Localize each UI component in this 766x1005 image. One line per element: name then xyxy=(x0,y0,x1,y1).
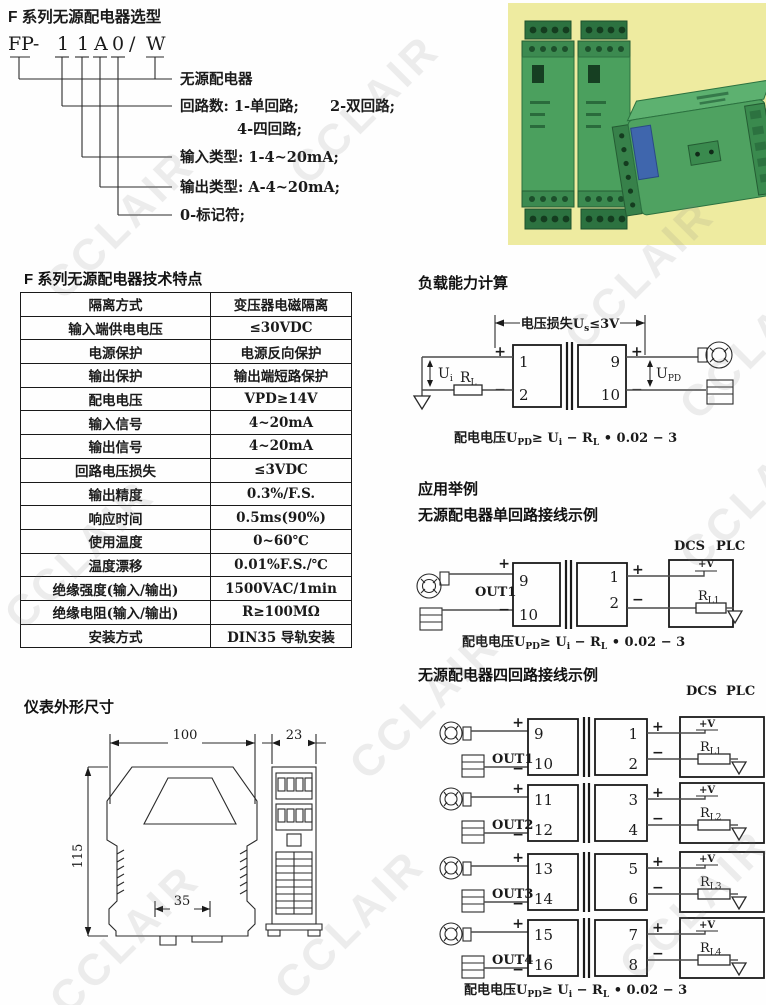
svg-text:14: 14 xyxy=(534,890,553,908)
svg-text:8: 8 xyxy=(628,956,638,974)
label-input-type: 输入类型: 1-4~20mA; xyxy=(180,148,339,166)
svg-text:2: 2 xyxy=(628,755,638,773)
table-row: 温度漂移0.01%F.S./℃ xyxy=(21,553,352,577)
voltage-loss-dim: 电压损失Us≤3V xyxy=(495,315,645,355)
label-passive-distributor: 无源配电器 xyxy=(180,70,253,88)
label-loop-count-2: 2-双回路; xyxy=(330,97,395,115)
table-row: 输入信号4~20mA xyxy=(21,411,352,435)
four-loop-formula: 配电电压UPD≥ Ui − RL • 0.02 − 3 xyxy=(464,982,687,1000)
svg-text:1: 1 xyxy=(57,33,69,55)
ground-symbol xyxy=(732,897,746,909)
svg-text:23: 23 xyxy=(286,728,303,743)
specs-table: 隔离方式变压器电磁隔离 输入端供电电压≤30VDC 电源保护电源反向保护 输出保… xyxy=(20,292,352,648)
input-terminal-box xyxy=(577,563,627,626)
application-title: 应用举例 xyxy=(418,478,478,499)
minus-sign: − xyxy=(632,592,644,608)
dimension-drawing: 100 23 115 xyxy=(10,716,395,1004)
load-calc-diagram: 电压损失Us≤3V 1 2 9 10 + − + − Ui RL UPD xyxy=(402,292,766,454)
out1-label: OUT1 xyxy=(475,585,516,600)
front-view xyxy=(266,767,322,936)
plc-label: PLC xyxy=(726,684,755,699)
terminal-2: 2 xyxy=(609,594,619,612)
isolation-barrier xyxy=(566,560,571,629)
plus-sign: + xyxy=(512,715,524,731)
minus-sign: − xyxy=(512,896,524,912)
plus-sign: + xyxy=(498,556,510,572)
svg-text:FP-: FP- xyxy=(8,33,39,55)
svg-text:4: 4 xyxy=(628,821,638,839)
plus-sign: + xyxy=(512,850,524,866)
svg-text:电压损失Us≤3V: 电压损失Us≤3V xyxy=(521,316,620,334)
plus-v-label: +V xyxy=(699,854,715,865)
minus-sign: − xyxy=(512,962,524,978)
selection-labels: 无源配电器 回路数: 1-单回路; 2-双回路; 4-四回路; 输入类型: 1-… xyxy=(180,70,395,224)
svg-text:0: 0 xyxy=(112,33,124,55)
table-row: 电源保护电源反向保护 xyxy=(21,340,352,364)
label-output-type: 输出类型: A-4~20mA; xyxy=(180,178,340,196)
svg-text:3: 3 xyxy=(628,791,638,809)
loop-row-4: OUT4 + − 15 16 7 8 + − +V RL4 xyxy=(440,916,764,978)
table-row: 安装方式DIN35 导轨安装 xyxy=(21,624,352,648)
svg-text:10: 10 xyxy=(534,755,553,773)
svg-text:W: W xyxy=(146,33,166,55)
isolation-barrier xyxy=(567,342,572,410)
table-row: 配电电压VPD≥14V xyxy=(21,387,352,411)
table-row: 输出信号4~20mA xyxy=(21,435,352,459)
plus-v-label: +V xyxy=(699,719,715,730)
dimensions-title: 仪表外形尺寸 xyxy=(24,696,114,717)
svg-text:15: 15 xyxy=(534,926,553,944)
table-row: 回路电压损失≤3VDC xyxy=(21,458,352,482)
minus-sign: − xyxy=(512,761,524,777)
terminal-10: 10 xyxy=(601,386,620,404)
module-standing-2 xyxy=(578,21,630,229)
table-row: 绝缘电阻(输入/输出)R≥100MΩ xyxy=(21,600,352,624)
plus-v-label: +V xyxy=(698,559,714,570)
table-row: 响应时间0.5ms(90%) xyxy=(21,506,352,530)
terminal-10: 10 xyxy=(519,606,538,624)
single-loop-formula: 配电电压UPD≥ Ui − RL • 0.02 − 3 xyxy=(462,634,685,652)
svg-text:16: 16 xyxy=(534,956,553,974)
label-loop-count-4: 4-四回路; xyxy=(237,120,302,138)
dim-115: 115 xyxy=(71,767,108,936)
plus-v-label: +V xyxy=(699,785,715,796)
label-loop-count: 回路数: 1-单回路; xyxy=(180,97,299,115)
terminal-9: 9 xyxy=(610,353,620,371)
svg-text:35: 35 xyxy=(174,894,191,909)
loop-row-3: OUT3 + − 13 14 5 6 + − +V RL3 xyxy=(440,850,764,912)
svg-text:6: 6 xyxy=(628,890,638,908)
svg-text:/: / xyxy=(129,33,136,55)
table-row: 输出精度0.3%/F.S. xyxy=(21,482,352,506)
table-row: 隔离方式变压器电磁隔离 xyxy=(21,293,352,317)
svg-text:115: 115 xyxy=(71,844,86,869)
transmitter-icon xyxy=(698,342,733,404)
product-photo xyxy=(508,3,766,245)
load-resistor-rl1 xyxy=(696,603,726,613)
svg-text:RL: RL xyxy=(460,370,477,388)
plc-label: PLC xyxy=(716,539,745,554)
ground-symbol xyxy=(732,828,746,840)
table-row: 输出保护输出端短路保护 xyxy=(21,364,352,388)
datasheet-page: CCLAIR CCLAIR CCLAIR CCLAIR CCLAIR CCLAI… xyxy=(0,0,766,1005)
dim-100: 100 xyxy=(110,728,255,804)
svg-text:12: 12 xyxy=(534,821,553,839)
single-loop-title: 无源配电器单回路接线示例 xyxy=(418,504,598,525)
selection-title: F 系列无源配电器选型 xyxy=(8,7,162,26)
table-row: 绝缘强度(输入/输出)1500VAC/1min xyxy=(21,577,352,601)
terminal-2: 2 xyxy=(519,386,529,404)
terminal-1: 1 xyxy=(609,568,619,586)
specs-title: F 系列无源配电器技术特点 xyxy=(24,268,202,289)
ground-symbol xyxy=(732,762,746,774)
dim-35: 35 xyxy=(155,894,210,917)
svg-text:7: 7 xyxy=(628,926,638,944)
ground-symbol xyxy=(732,963,746,975)
svg-text:5: 5 xyxy=(628,860,638,878)
selection-callout-lines xyxy=(10,57,172,215)
load-calc-formula: 配电电压UPD≥ Ui − RL • 0.02 − 3 xyxy=(454,430,677,448)
module-standing-1 xyxy=(522,21,574,229)
svg-text:A: A xyxy=(93,33,108,55)
svg-text:Ui: Ui xyxy=(438,366,453,384)
svg-text:100: 100 xyxy=(173,728,198,743)
loop-row-2: OUT2 + − 11 12 3 4 + − +V RL2 xyxy=(440,781,764,843)
dcs-label: DCS xyxy=(686,684,717,699)
transmitter-icon xyxy=(417,572,449,630)
ground-symbol xyxy=(728,611,742,623)
minus-sign: − xyxy=(498,602,510,618)
ground-symbol xyxy=(414,396,430,409)
svg-text:1: 1 xyxy=(628,725,638,743)
load-calc-title: 负载能力计算 xyxy=(418,272,508,293)
plus-v-label: +V xyxy=(699,920,715,931)
dcs-plc-box xyxy=(680,852,764,912)
terminal-9: 9 xyxy=(519,572,529,590)
svg-text:13: 13 xyxy=(534,860,553,878)
dcs-plc-box xyxy=(680,717,764,777)
load-resistor xyxy=(454,385,482,395)
plus-sign: + xyxy=(512,781,524,797)
model-code: FP- 1 1 A 0 / W xyxy=(8,33,166,55)
label-marker: 0-标记符; xyxy=(180,206,245,224)
four-loop-title: 无源配电器四回路接线示例 xyxy=(418,664,598,685)
minus-sign: − xyxy=(512,827,524,843)
table-row: 输入端供电电压≤30VDC xyxy=(21,316,352,340)
terminal-1: 1 xyxy=(519,353,529,371)
model-selection-diagram: F 系列无源配电器选型 FP- 1 1 A 0 / W 无源配电器 回路数: 1… xyxy=(0,0,500,235)
dcs-label: DCS xyxy=(674,539,705,554)
dcs-plc-box xyxy=(680,918,764,978)
four-loop-diagram: DCS PLC OUT1 + − 9 10 1 2 + − +V xyxy=(402,684,766,1005)
single-loop-diagram: DCS PLC OUT1 + − 9 10 1 2 + − +V RL1 xyxy=(402,528,766,656)
table-row: 使用温度0~60℃ xyxy=(21,529,352,553)
svg-text:9: 9 xyxy=(534,725,544,743)
plus-sign: + xyxy=(512,916,524,932)
loop-row-1: OUT1 + − 9 10 1 2 + − +V RL1 xyxy=(440,715,764,777)
dcs-plc-box xyxy=(680,783,764,843)
side-profile xyxy=(107,767,257,945)
svg-text:11: 11 xyxy=(534,791,553,809)
svg-text:1: 1 xyxy=(77,33,89,55)
svg-text:UPD: UPD xyxy=(656,366,681,384)
dim-23: 23 xyxy=(262,728,326,764)
